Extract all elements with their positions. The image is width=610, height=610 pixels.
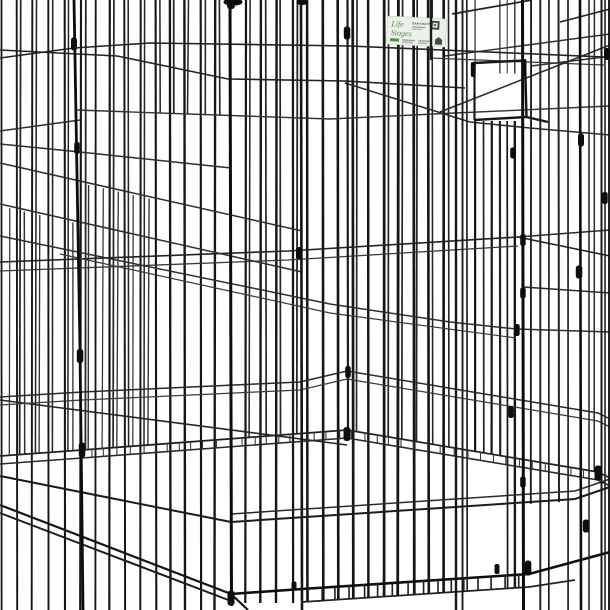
svg-text:Stages: Stages [391, 28, 412, 38]
